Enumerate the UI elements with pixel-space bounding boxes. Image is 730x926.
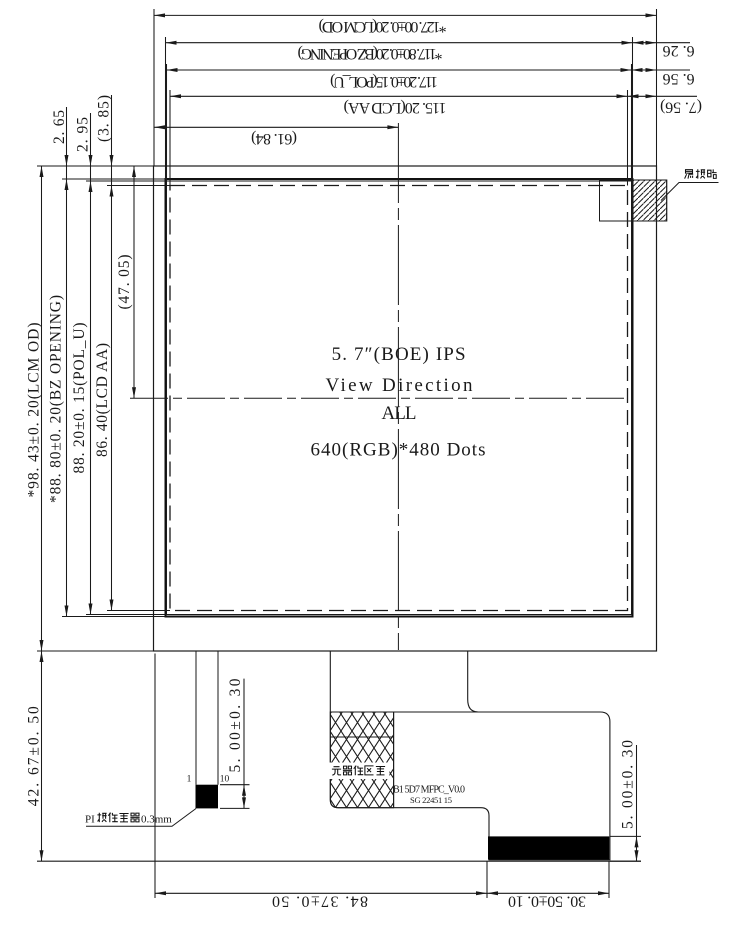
svg-text:*98. 43±0. 20(LCM OD): *98. 43±0. 20(LCM OD)	[26, 323, 43, 498]
svg-text:115. 20(LCD AA): 115. 20(LCD AA)	[344, 99, 447, 116]
svg-text:10: 10	[220, 775, 230, 785]
svg-text:84. 37±0. 50: 84. 37±0. 50	[272, 893, 368, 910]
svg-text:ALL: ALL	[382, 403, 417, 424]
svg-text:5. 7″(BOE) IPS: 5. 7″(BOE) IPS	[332, 344, 466, 365]
svg-text:(47. 05): (47. 05)	[116, 255, 133, 310]
svg-text:30. 50±0. 10: 30. 50±0. 10	[508, 893, 586, 910]
svg-text:42. 67±0. 50: 42. 67±0. 50	[26, 706, 43, 806]
svg-text:2. 65: 2. 65	[51, 110, 68, 144]
svg-text:86. 40(LCD AA): 86. 40(LCD AA)	[94, 343, 111, 457]
svg-text:(61. 84): (61. 84)	[251, 130, 297, 147]
svg-text:View Direction: View Direction	[326, 375, 474, 396]
svg-text:*88. 80±0. 20(BZ OPENING): *88. 80±0. 20(BZ OPENING)	[48, 295, 65, 503]
svg-text:88. 20±0. 15(POL_U): 88. 20±0. 15(POL_U)	[71, 323, 88, 474]
svg-text:6. 26: 6. 26	[663, 42, 695, 59]
svg-text:B1 5D7 MFPC_V0.0: B1 5D7 MFPC_V0.0	[393, 785, 465, 796]
svg-text:5. 00±0. 30: 5. 00±0. 30	[227, 678, 244, 772]
svg-text:(7. 56): (7. 56)	[660, 99, 702, 116]
svg-text:640(RGB)*480 Dots: 640(RGB)*480 Dots	[311, 440, 486, 461]
svg-text:5. 00±0. 30: 5. 00±0. 30	[620, 740, 637, 829]
svg-text:0.3mm: 0.3mm	[141, 814, 172, 826]
svg-text:*127. 00±0. 20(LCM OD): *127. 00±0. 20(LCM OD)	[319, 18, 447, 35]
svg-text:(3. 85): (3. 85)	[96, 95, 113, 142]
svg-text:*117. 80±0. 20(BZ OPENING): *117. 80±0. 20(BZ OPENING)	[298, 45, 443, 62]
svg-text:2. 95: 2. 95	[75, 117, 92, 152]
svg-text:6. 56: 6. 56	[663, 70, 695, 87]
svg-text:SG 22451 15: SG 22451 15	[410, 795, 452, 805]
svg-text:1: 1	[187, 775, 192, 785]
svg-text:117. 20±0. 15(POL_U): 117. 20±0. 15(POL_U)	[330, 73, 438, 90]
svg-text:PI: PI	[85, 814, 95, 826]
